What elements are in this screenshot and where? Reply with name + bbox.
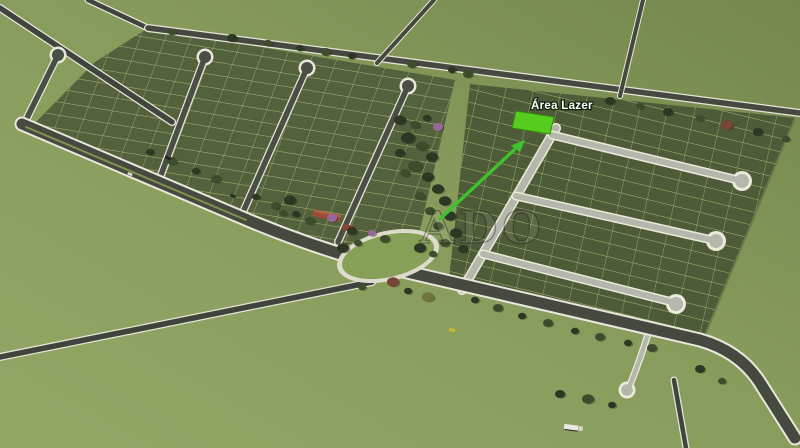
tree-icon xyxy=(582,394,594,404)
tree-icon xyxy=(358,284,366,290)
tree-icon xyxy=(463,70,473,78)
tree-icon xyxy=(718,378,726,384)
tree-icon xyxy=(348,53,356,59)
subdivision-render: ADO Área Lazer xyxy=(0,0,800,448)
tree-icon xyxy=(146,149,154,155)
tree-icon xyxy=(422,292,434,302)
tree-icon xyxy=(395,149,405,157)
tree-icon xyxy=(354,240,362,246)
tree-icon xyxy=(624,340,632,346)
tree-icon xyxy=(400,169,410,177)
tree-icon xyxy=(401,132,415,143)
tree-icon xyxy=(647,344,657,352)
tree-icon xyxy=(605,97,615,105)
tree-icon xyxy=(387,277,399,287)
tree-icon xyxy=(518,313,526,319)
tree-icon xyxy=(471,297,479,303)
tree-icon xyxy=(296,45,304,51)
watermark-text: ADO xyxy=(419,203,546,254)
tree-icon xyxy=(271,202,281,210)
tree-icon xyxy=(168,29,176,35)
tree-icon xyxy=(408,160,422,171)
tree-icon xyxy=(410,121,420,129)
tree-icon xyxy=(543,319,553,327)
tree-icon xyxy=(337,243,349,253)
tree-icon xyxy=(595,333,605,341)
tree-icon xyxy=(192,168,200,174)
tree-icon xyxy=(571,328,579,334)
tree-icon xyxy=(305,217,315,225)
tree-icon xyxy=(211,175,221,183)
tree-icon xyxy=(448,67,456,73)
tree-icon xyxy=(368,230,376,236)
tree-icon xyxy=(416,141,428,151)
tree-icon xyxy=(279,210,287,216)
tree-icon xyxy=(608,402,616,408)
tree-icon xyxy=(415,192,425,200)
tree-icon xyxy=(696,115,704,121)
tree-icon xyxy=(227,34,237,42)
tree-icon xyxy=(394,115,406,125)
tree-icon xyxy=(782,136,790,142)
tree-icon xyxy=(663,108,673,116)
tree-icon xyxy=(292,211,300,217)
tree-icon xyxy=(493,304,503,312)
tree-icon xyxy=(264,40,272,46)
tree-icon xyxy=(252,194,260,200)
tree-icon xyxy=(695,365,705,373)
tree-icon xyxy=(407,60,417,68)
tree-icon xyxy=(347,227,357,235)
tree-icon xyxy=(321,48,331,56)
tree-icon xyxy=(721,120,733,130)
aerial-render-image: ADO Área Lazer xyxy=(0,0,800,448)
tree-icon xyxy=(636,103,644,109)
tree-icon xyxy=(753,128,763,136)
tree-icon xyxy=(380,235,390,243)
tree-icon xyxy=(432,184,444,194)
tree-icon xyxy=(284,195,296,205)
tree-icon xyxy=(555,390,565,398)
tree-icon xyxy=(327,214,337,222)
tree-icon xyxy=(426,152,438,162)
area-lazer-label: Área Lazer xyxy=(531,99,593,112)
tree-icon xyxy=(404,288,412,294)
tree-icon xyxy=(433,123,443,131)
tree-icon xyxy=(422,172,434,182)
tree-icon xyxy=(423,115,431,121)
